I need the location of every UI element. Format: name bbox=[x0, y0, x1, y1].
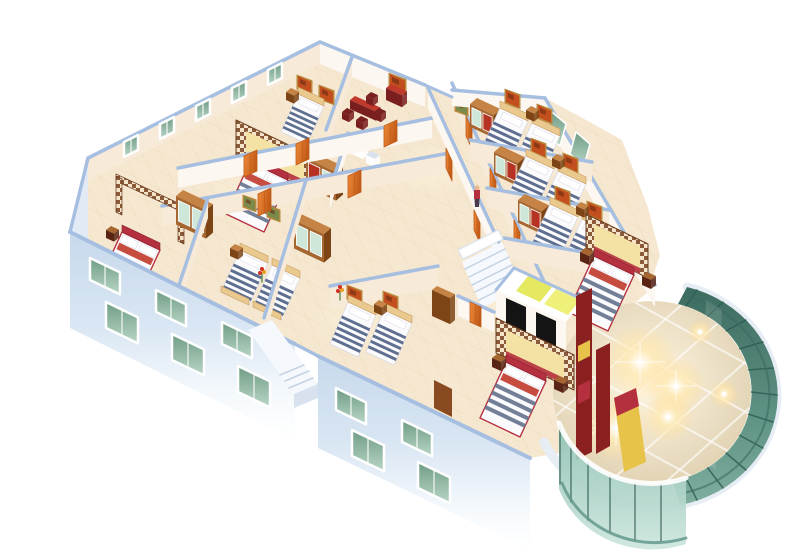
flowers-l3-bloom-3 bbox=[338, 285, 342, 289]
flowers-l2-bloom-1 bbox=[258, 271, 262, 275]
light-sparkle-2-core bbox=[722, 392, 726, 396]
flowers-l3-bloom-1 bbox=[336, 289, 340, 293]
person-corridor-torso bbox=[474, 190, 480, 199]
person-corridor-legs bbox=[475, 199, 480, 207]
dresser-l3-side bbox=[450, 294, 455, 324]
isometric-floorplan bbox=[0, 0, 800, 550]
pillar-red bbox=[576, 288, 592, 460]
wardrobe-l2-side bbox=[324, 228, 331, 263]
flowers-l2-bloom-3 bbox=[260, 267, 264, 271]
scene-root bbox=[70, 42, 778, 550]
light-sparkle-1-core bbox=[698, 330, 702, 334]
bed-canopy-l1-post-left bbox=[116, 176, 122, 215]
counter-red bbox=[596, 343, 610, 454]
floorplan-render bbox=[0, 0, 800, 550]
person-corridor-head bbox=[475, 186, 480, 191]
light-flare-3-core bbox=[666, 415, 670, 419]
